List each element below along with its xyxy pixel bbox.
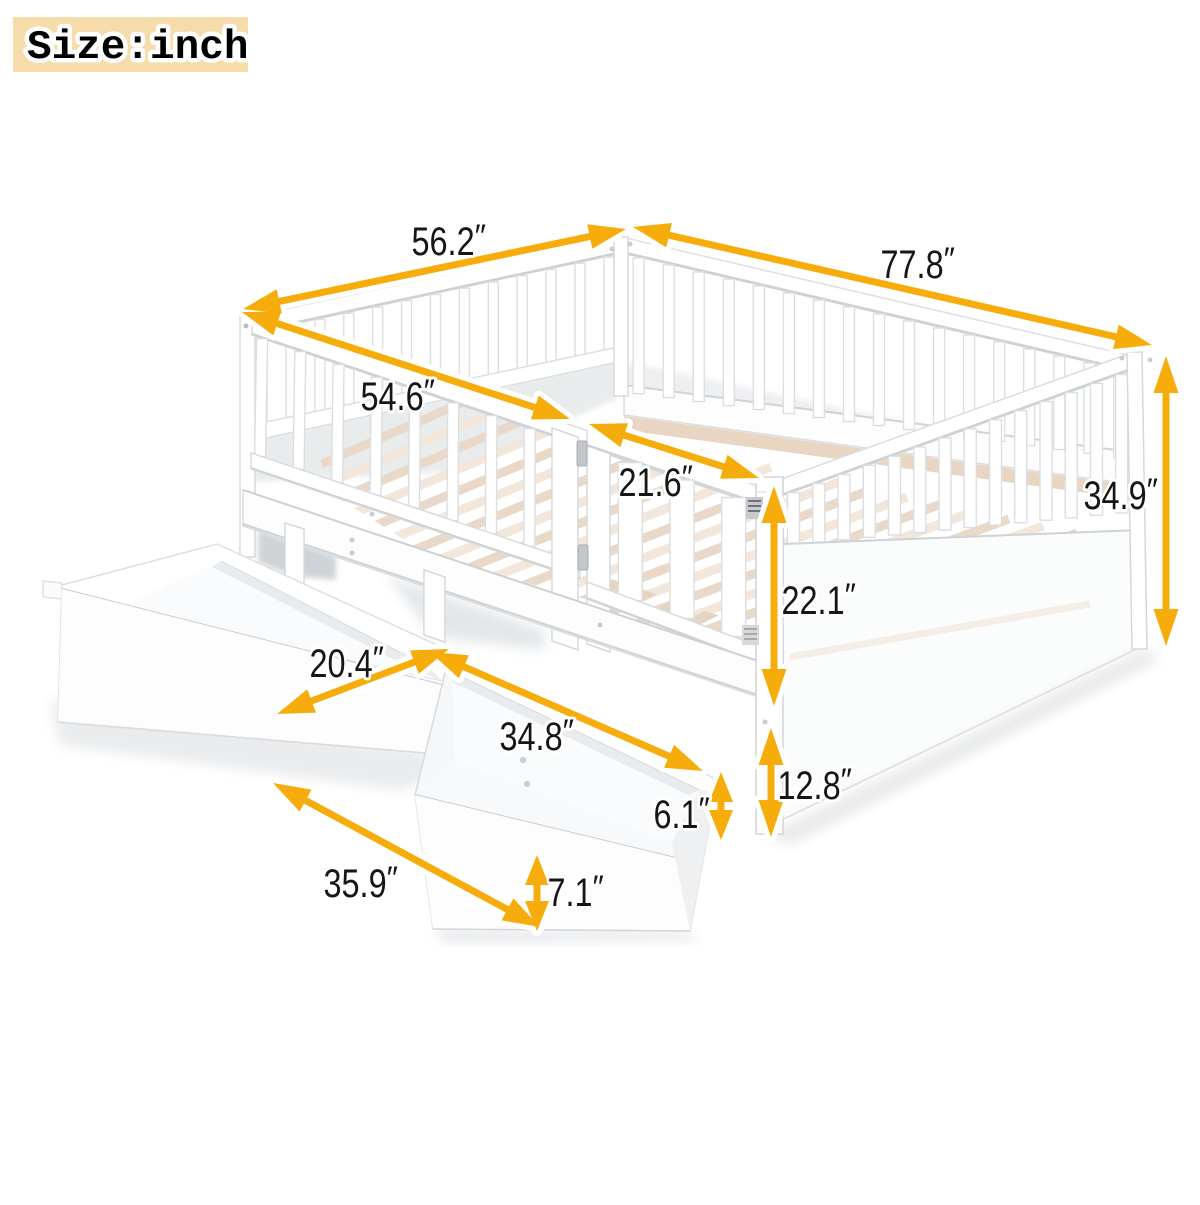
svg-text:Size:inch: Size:inch: [27, 25, 248, 71]
